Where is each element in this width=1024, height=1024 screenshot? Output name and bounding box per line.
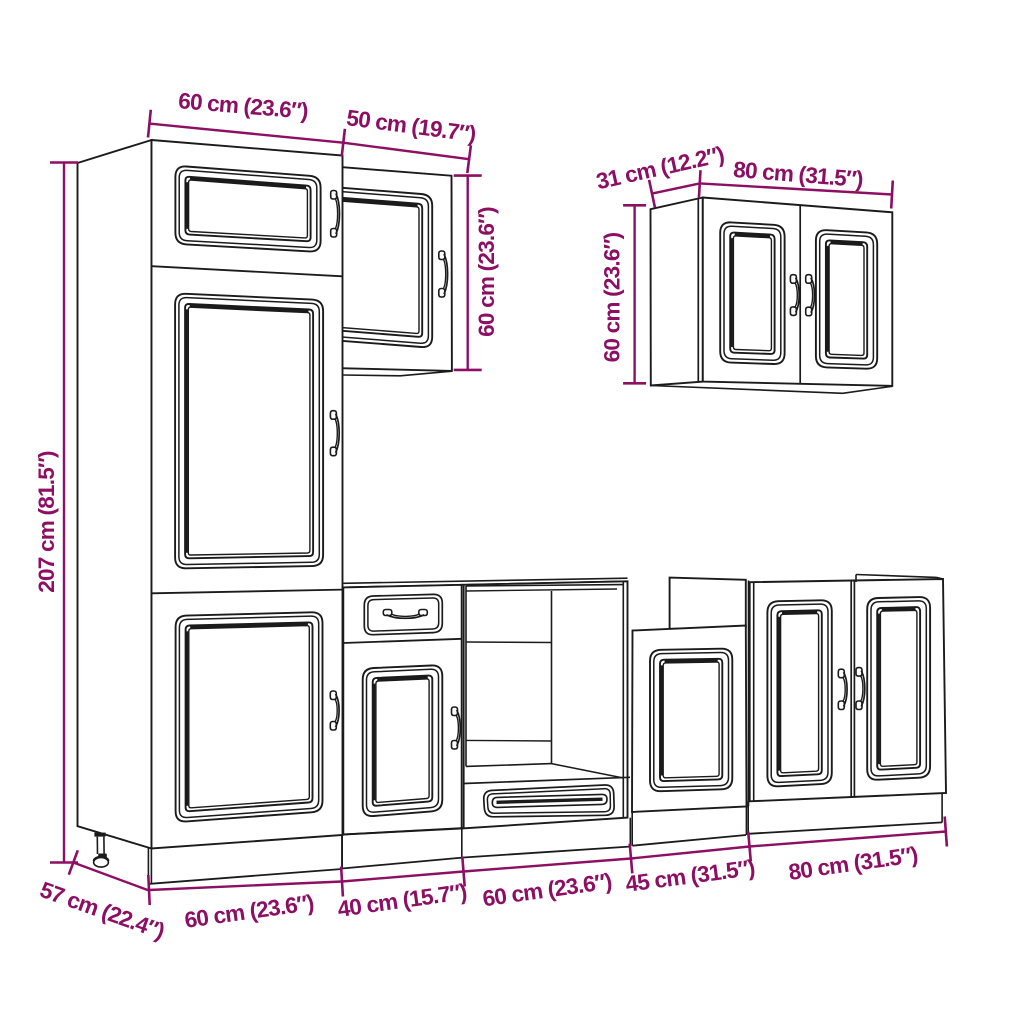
svg-text:60 cm (23.6″): 60 cm (23.6″) — [600, 232, 625, 362]
svg-text:60 cm (23.6″): 60 cm (23.6″) — [474, 207, 499, 337]
svg-text:207 cm (81.5″): 207 cm (81.5″) — [34, 451, 59, 593]
